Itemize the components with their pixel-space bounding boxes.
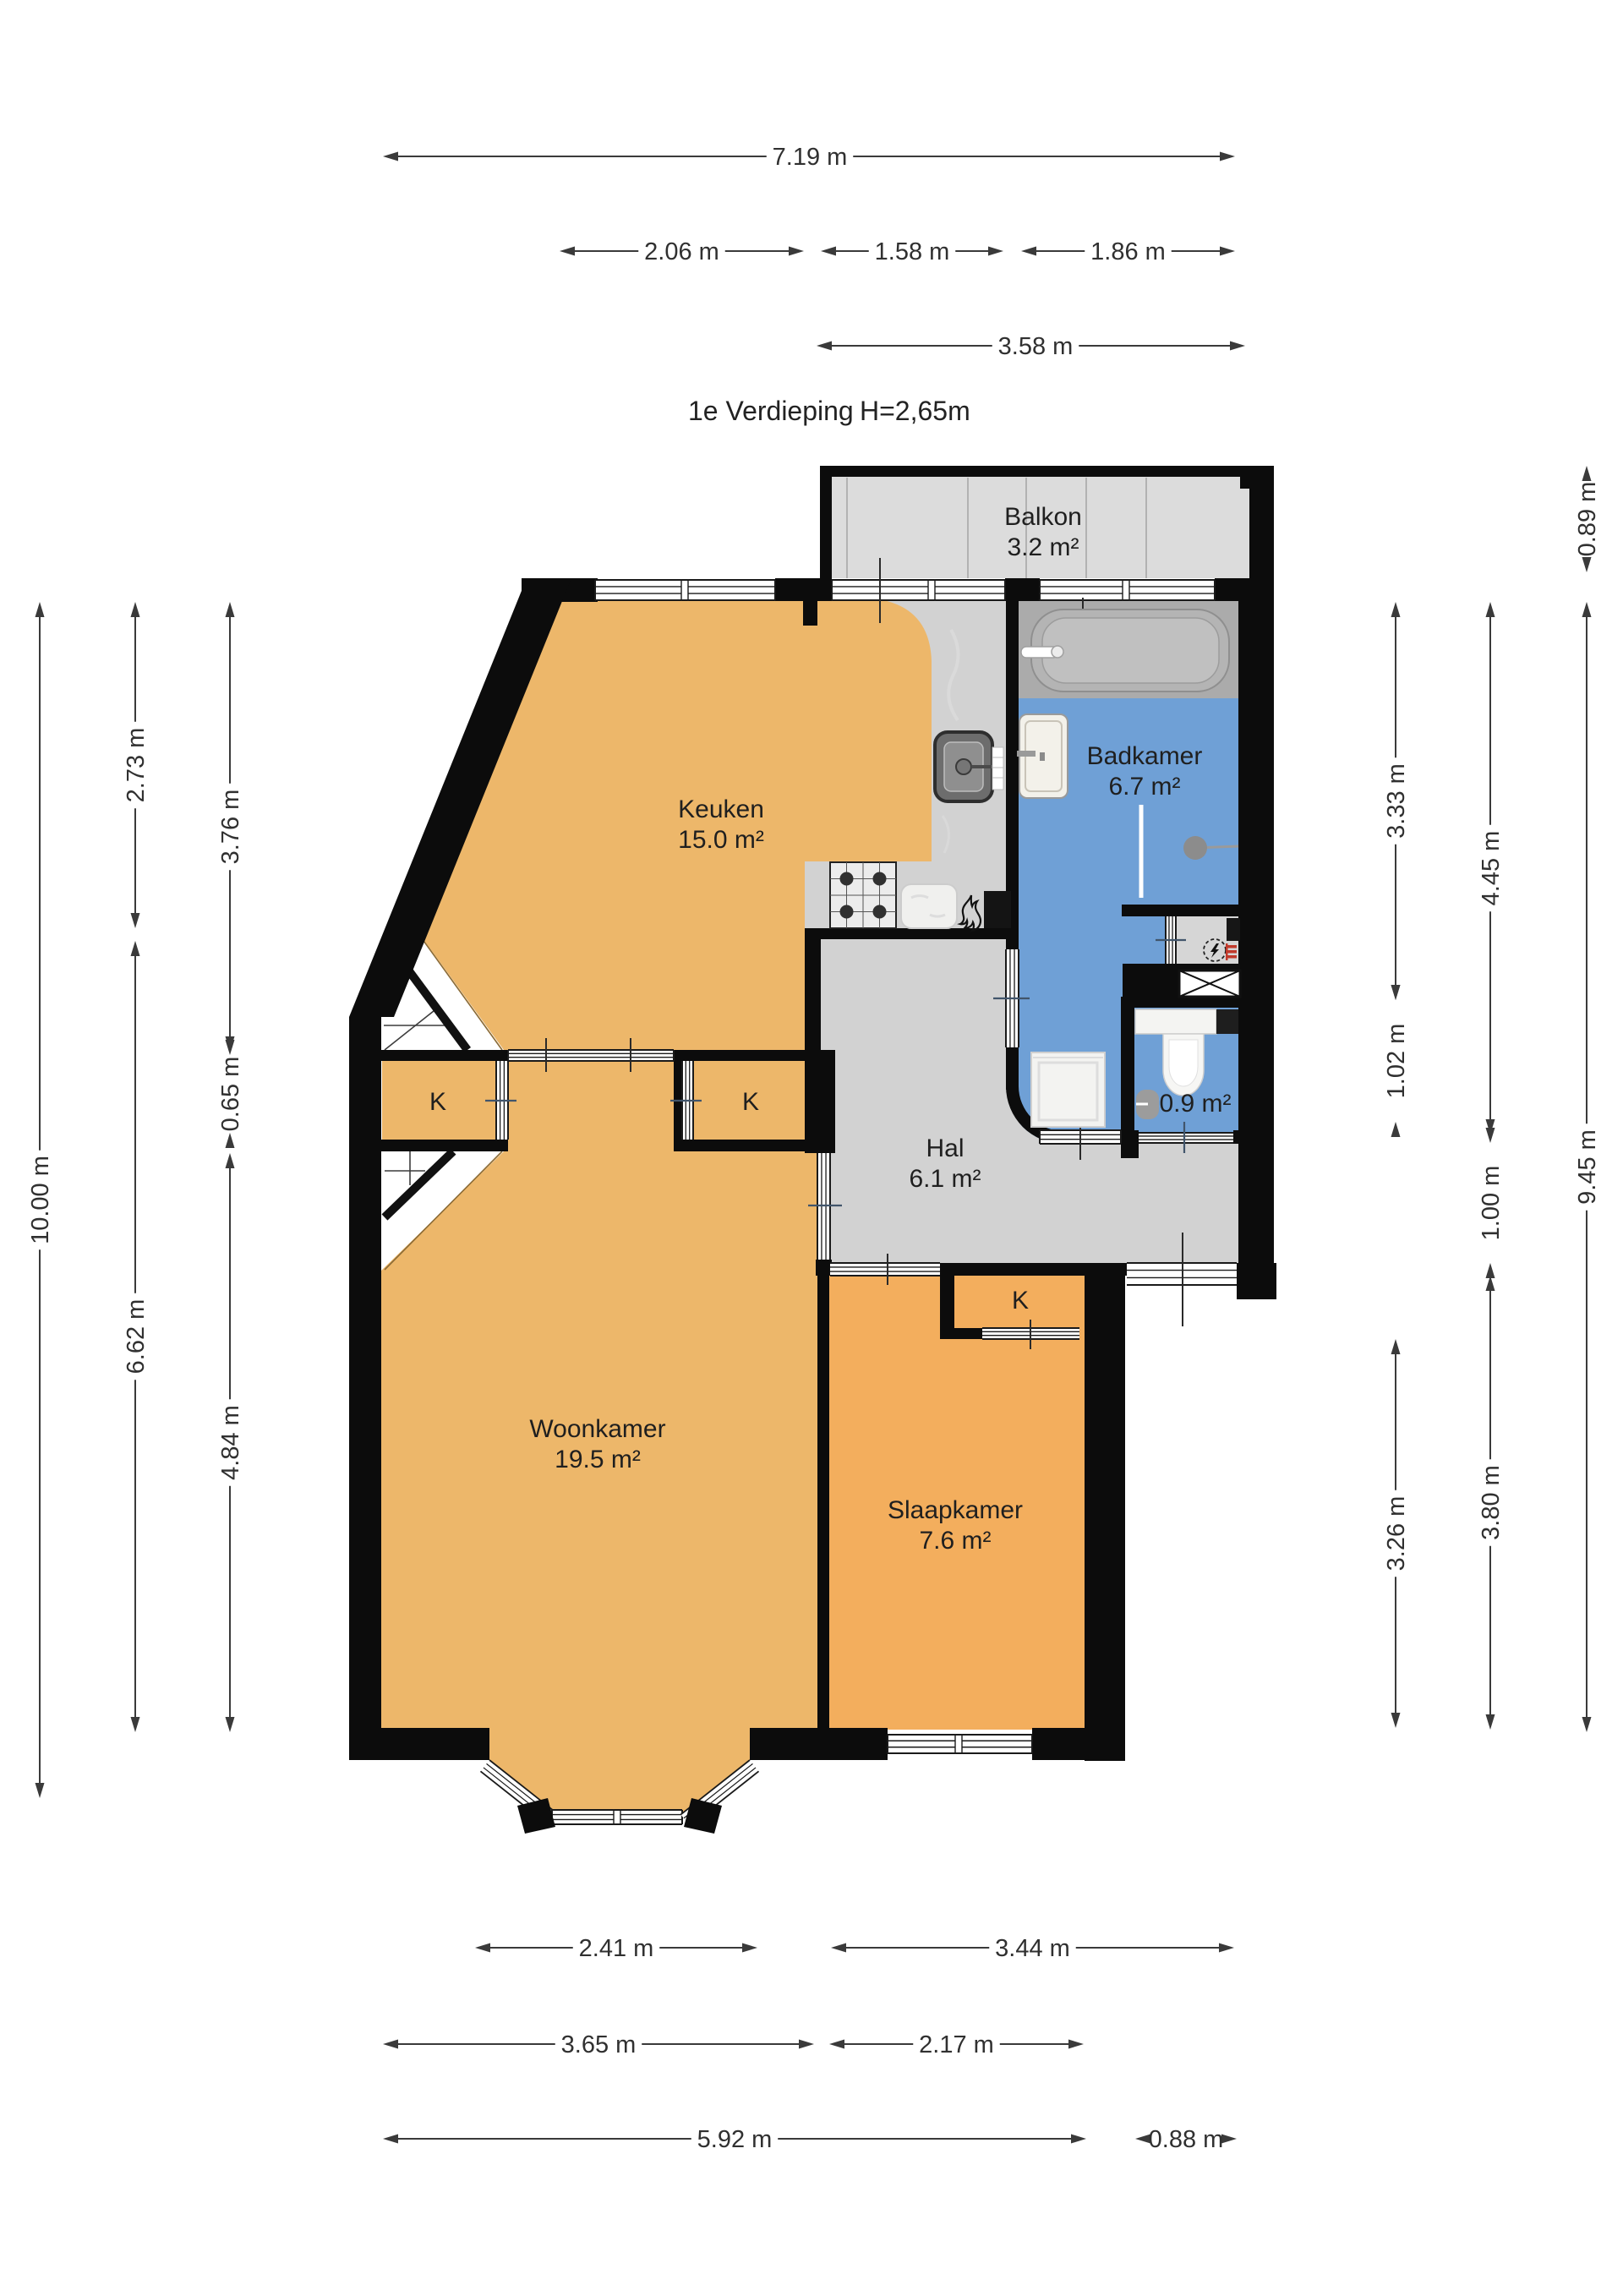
svg-text:7.19 m: 7.19 m	[773, 144, 848, 171]
svg-text:6.7 m²: 6.7 m²	[1108, 773, 1180, 801]
svg-text:3.65 m: 3.65 m	[561, 2031, 637, 2058]
svg-text:Badkamer: Badkamer	[1087, 742, 1203, 770]
svg-text:15.0 m²: 15.0 m²	[678, 826, 764, 854]
svg-text:4.84 m: 4.84 m	[217, 1405, 244, 1480]
svg-text:1.58 m: 1.58 m	[875, 238, 950, 265]
svg-text:2.06 m: 2.06 m	[644, 238, 719, 265]
svg-text:10.00 m: 10.00 m	[27, 1156, 54, 1244]
svg-text:Woonkamer: Woonkamer	[529, 1415, 665, 1443]
svg-text:3.2 m²: 3.2 m²	[1007, 533, 1079, 561]
svg-text:7.6 m²: 7.6 m²	[919, 1527, 991, 1555]
svg-text:2.41 m: 2.41 m	[579, 1935, 654, 1962]
svg-text:1.02 m: 1.02 m	[1383, 1024, 1410, 1099]
svg-text:6.62 m: 6.62 m	[123, 1299, 150, 1375]
svg-text:4.45 m: 4.45 m	[1478, 831, 1505, 906]
svg-text:Balkon: Balkon	[1004, 503, 1082, 531]
svg-text:2.73 m: 2.73 m	[123, 728, 150, 803]
svg-text:0.65 m: 0.65 m	[217, 1057, 244, 1132]
svg-text:2.17 m: 2.17 m	[919, 2031, 994, 2058]
svg-text:0.88 m: 0.88 m	[1149, 2126, 1224, 2153]
svg-text:Slaapkamer: Slaapkamer	[888, 1496, 1023, 1524]
svg-text:0.89 m: 0.89 m	[1574, 482, 1601, 557]
svg-text:3.33 m: 3.33 m	[1383, 763, 1410, 839]
svg-text:19.5 m²: 19.5 m²	[555, 1446, 641, 1473]
svg-text:1e Verdieping: 1e Verdieping	[688, 396, 854, 426]
svg-text:3.58 m: 3.58 m	[998, 333, 1074, 360]
svg-text:3.26 m: 3.26 m	[1383, 1496, 1410, 1572]
svg-text:H=2,65m: H=2,65m	[860, 396, 970, 426]
svg-text:3.44 m: 3.44 m	[995, 1935, 1070, 1962]
svg-text:3.76 m: 3.76 m	[217, 790, 244, 865]
svg-text:6.1 m²: 6.1 m²	[909, 1165, 981, 1193]
svg-text:K: K	[1012, 1287, 1029, 1315]
svg-text:0.9 m²: 0.9 m²	[1159, 1090, 1231, 1118]
svg-text:1.00 m: 1.00 m	[1478, 1166, 1505, 1241]
svg-text:K: K	[742, 1088, 759, 1116]
svg-text:5.92 m: 5.92 m	[697, 2126, 773, 2153]
svg-text:K: K	[429, 1088, 446, 1116]
svg-text:9.45 m: 9.45 m	[1574, 1129, 1601, 1205]
svg-text:Hal: Hal	[926, 1134, 964, 1162]
svg-text:1.86 m: 1.86 m	[1090, 238, 1166, 265]
svg-text:Keuken: Keuken	[678, 795, 764, 823]
svg-text:3.80 m: 3.80 m	[1478, 1465, 1505, 1540]
